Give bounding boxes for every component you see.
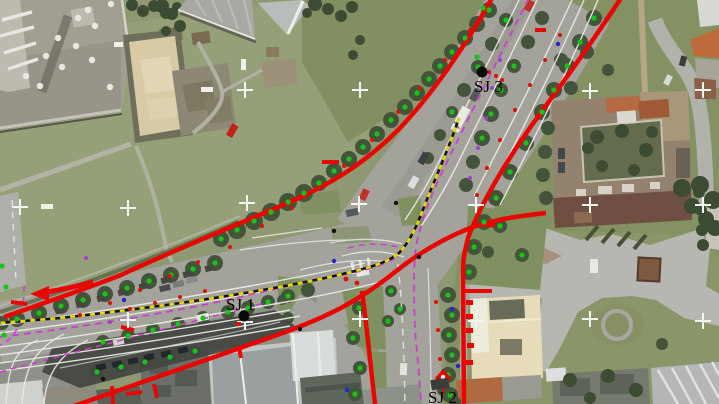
svg-text:SJ 2: SJ 2 — [428, 388, 457, 404]
svg-text:SJ 3: SJ 3 — [474, 77, 503, 96]
svg-text:SJ 1: SJ 1 — [226, 295, 255, 314]
